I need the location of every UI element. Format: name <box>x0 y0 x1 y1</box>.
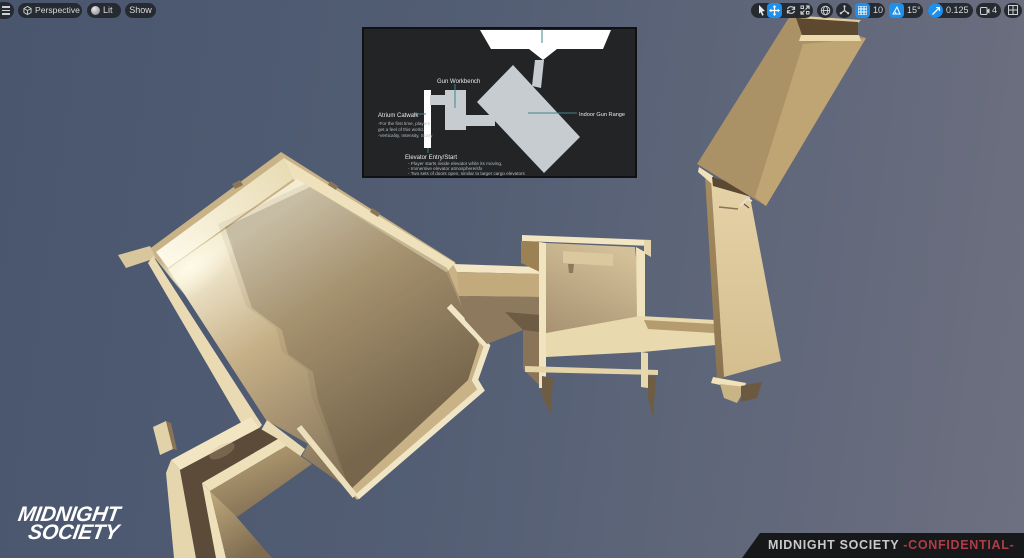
svg-text:Gun Workbench: Gun Workbench <box>437 79 480 85</box>
svg-text:Indoor Gun Range: Indoor Gun Range <box>579 112 625 118</box>
svg-text:-For the first time, players: -For the first time, players <box>378 121 431 126</box>
svg-text:Atrium Catwalk: Atrium Catwalk <box>378 113 419 119</box>
svg-text:get a feel of this world.: get a feel of this world. <box>378 127 424 132</box>
svg-text:- Two sets of doors open, simi: - Two sets of doors open, similar to lar… <box>408 171 526 176</box>
svg-text:-Verticality, Intensity, Scary: -Verticality, Intensity, Scary <box>378 133 433 138</box>
